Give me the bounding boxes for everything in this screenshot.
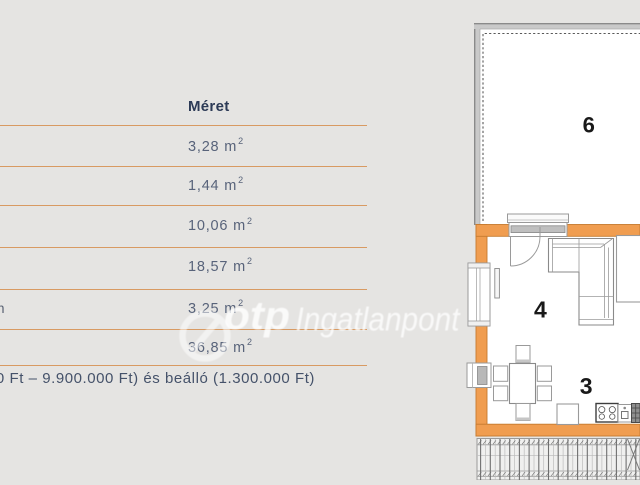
svg-text:6: 6 <box>583 113 595 138</box>
svg-text:3: 3 <box>580 373 593 399</box>
svg-text:4: 4 <box>534 296 547 322</box>
